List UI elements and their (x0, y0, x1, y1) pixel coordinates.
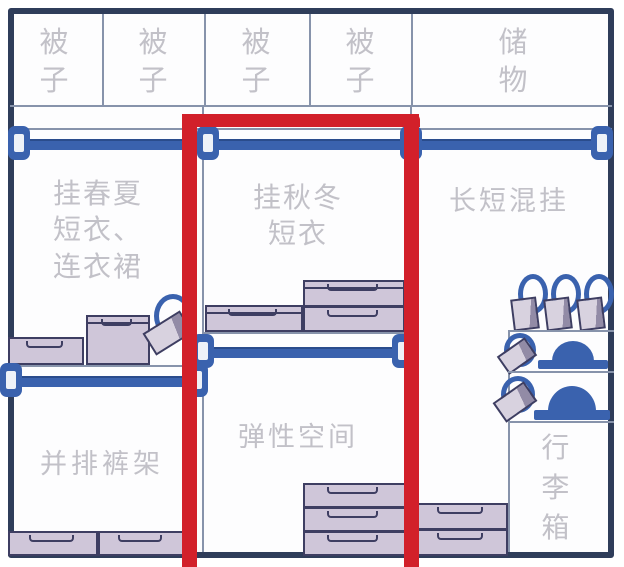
quilt-label-2: 被子 (138, 24, 170, 99)
left-pants-rod (12, 376, 202, 387)
wardrobe-diagram: 被子 被子 被子 被子 储物 挂春夏 短衣、 连衣裙 并排裤架 挂秋冬 短衣 弹… (0, 0, 624, 567)
rod-bracket-icon (8, 126, 30, 160)
flex-space-label: 弹性空间 (228, 420, 368, 455)
storage-box-icon (86, 315, 150, 365)
storage-label: 储物 (498, 24, 530, 99)
storage-box-icon (303, 306, 405, 332)
left-hanging-line3: 连衣裙 (36, 249, 160, 285)
drawer-icon (416, 529, 508, 556)
left-hanging-line2: 短衣、 (36, 212, 160, 248)
upper-shelf-line (10, 128, 612, 130)
highlight-rect-right (404, 114, 419, 567)
shelf-mat-icon (534, 410, 610, 420)
drawer-icon (98, 531, 186, 556)
shelf-mat-icon (538, 360, 608, 369)
pants-rack-label: 并排裤架 (22, 447, 182, 482)
rod-bracket-icon (591, 126, 613, 160)
top-row-divider-2 (204, 14, 206, 106)
column-divider-left-middle (202, 106, 204, 552)
right-shelf-line-2 (508, 371, 614, 373)
left-shelf-line (10, 365, 203, 367)
highlight-rect-left (182, 114, 197, 567)
right-hanging-label: 长短混挂 (436, 184, 582, 219)
middle-hanging-label: 挂秋冬 短衣 (238, 180, 358, 253)
middle-hanging-line2: 短衣 (238, 216, 358, 252)
top-row-divider-4 (411, 14, 413, 106)
storage-box-icon (303, 280, 405, 307)
quilt-label-1: 被子 (39, 24, 71, 99)
handbag-icon (512, 274, 546, 332)
left-hanging-line1: 挂春夏 (36, 176, 160, 212)
top-row-divider-3 (309, 14, 311, 106)
left-hanging-label: 挂春夏 短衣、 连衣裙 (36, 176, 160, 285)
right-shelf-line-3 (508, 421, 614, 423)
right-shelf-line-1 (508, 330, 614, 332)
luggage-label: 行李箱 (541, 428, 572, 547)
top-row-bottom-line (10, 105, 612, 107)
drawer-icon (303, 483, 406, 508)
drawer-icon (8, 531, 98, 556)
rod-bracket-icon (0, 363, 22, 397)
middle-hanging-line1: 挂秋冬 (238, 180, 358, 216)
quilt-label-4: 被子 (345, 24, 377, 99)
middle-hanging-rod (206, 347, 410, 358)
rod-bracket-icon (197, 126, 219, 160)
drawer-icon (303, 531, 406, 556)
handbag-icon (578, 274, 612, 332)
storage-box-icon (8, 337, 84, 365)
drawer-icon (303, 507, 406, 532)
storage-box-icon (205, 305, 303, 332)
quilt-label-3: 被子 (241, 24, 273, 99)
handbag-icon (545, 274, 579, 332)
highlight-rect-top (182, 114, 420, 127)
top-row-divider-1 (102, 14, 104, 106)
middle-shelf-line (203, 332, 411, 334)
drawer-icon (416, 503, 508, 530)
top-hanging-rod (14, 139, 610, 150)
